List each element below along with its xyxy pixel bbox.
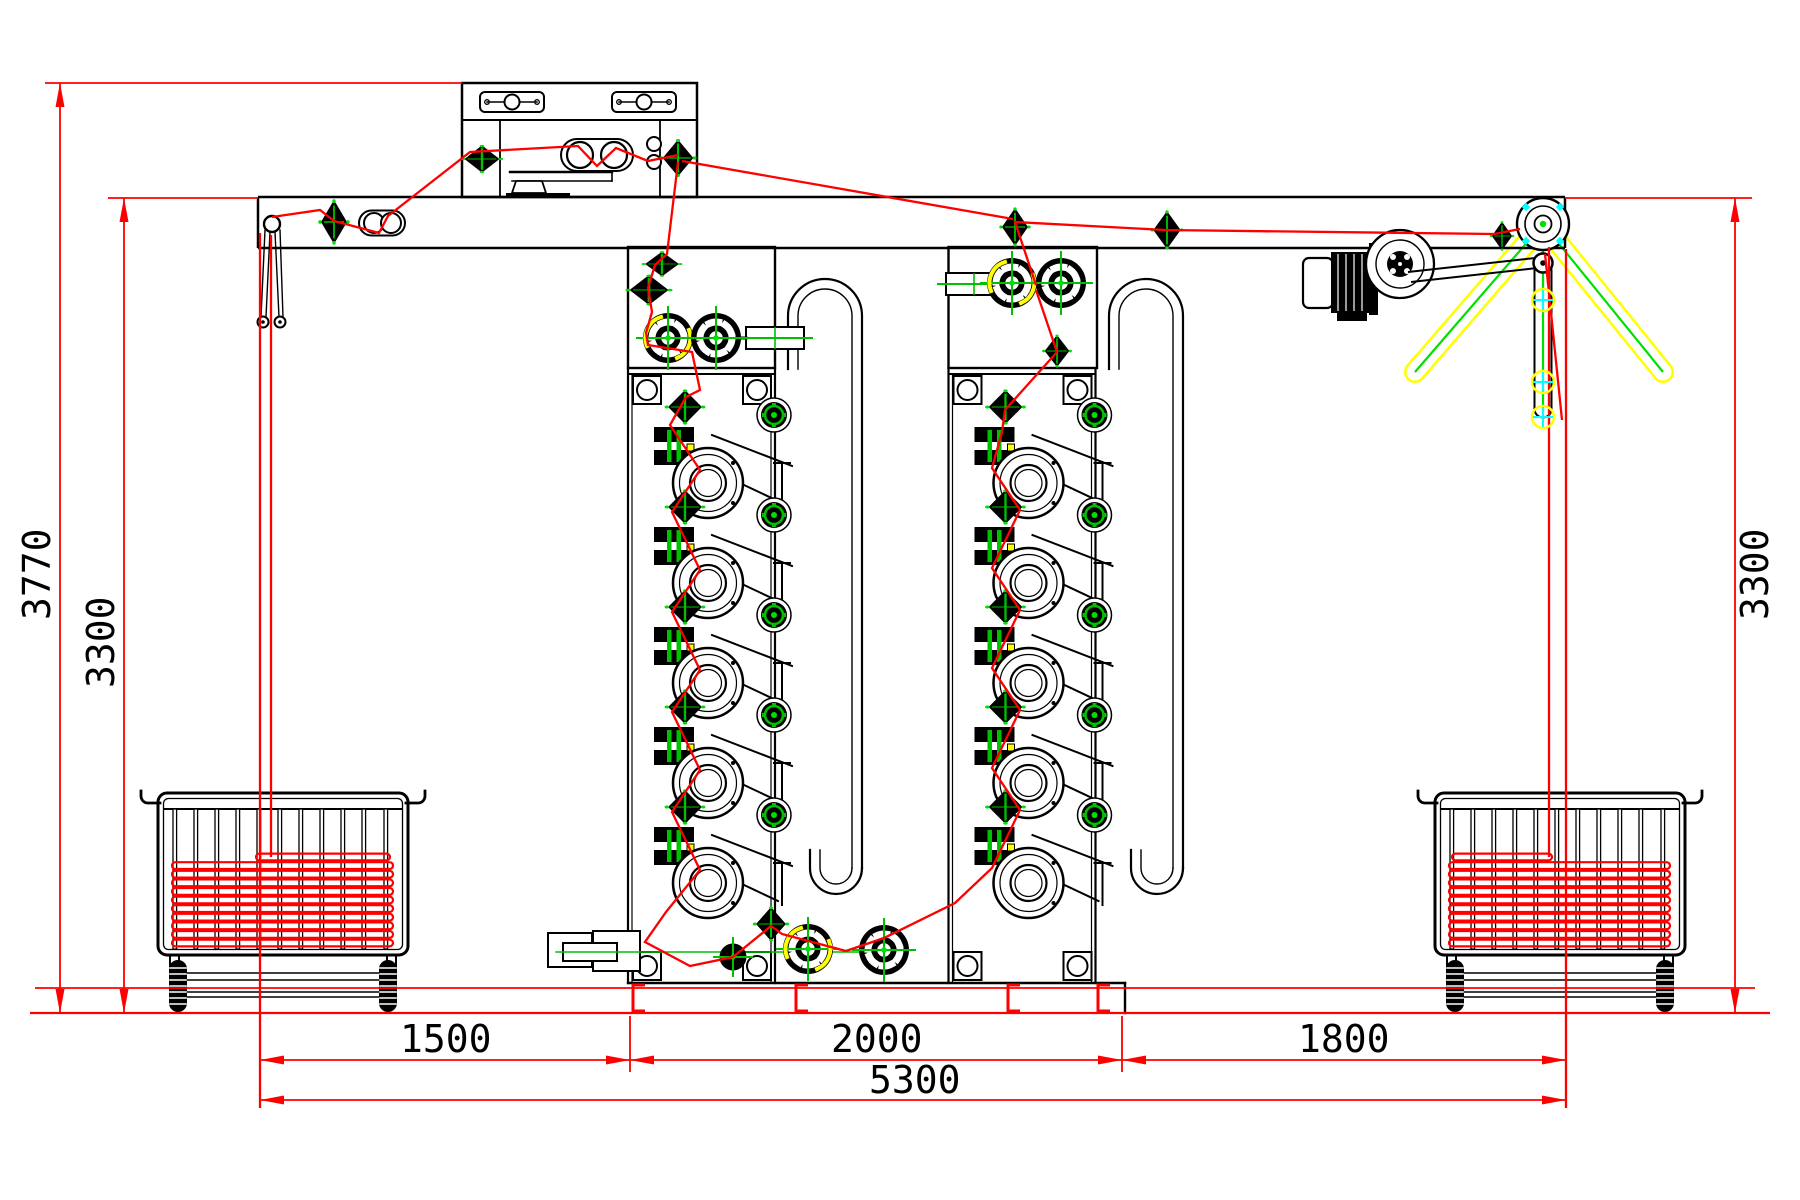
overhead-beam	[258, 197, 1565, 251]
dim-right-height: 3300	[1733, 528, 1777, 620]
dim-towers: 2000	[831, 1017, 923, 1061]
machine-elevation-drawing: 3770 3300 3300 1500 2000 1800 5300	[0, 0, 1800, 1200]
squeeze-unit-tower2-top	[938, 247, 1097, 368]
dim-bay-right: 1800	[1298, 1017, 1390, 1061]
winder-wheel	[1517, 198, 1569, 250]
dim-total-width: 5300	[869, 1058, 961, 1102]
plaiting-swing-arm	[1415, 224, 1663, 417]
cad-drawing-page: 3770 3300 3300 1500 2000 1800 5300	[0, 0, 1800, 1200]
squeeze-unit-tower1-top	[625, 247, 812, 369]
wash-tower-2	[949, 368, 1113, 983]
dim-left-height: 3300	[79, 596, 123, 688]
rope-cart-right	[1418, 791, 1702, 1012]
dim-total-height: 3770	[15, 528, 59, 620]
rope-cart-left	[141, 791, 425, 1012]
overflow-u-pipe-right	[1109, 279, 1183, 894]
base-anchor-brackets	[633, 985, 1110, 1011]
wash-tower-1	[628, 368, 792, 983]
top-feeder-box	[461, 83, 697, 198]
squeeze-unit-bottom	[548, 906, 915, 981]
overflow-u-pipe-left	[788, 279, 862, 894]
dim-bay-left: 1500	[400, 1017, 492, 1061]
